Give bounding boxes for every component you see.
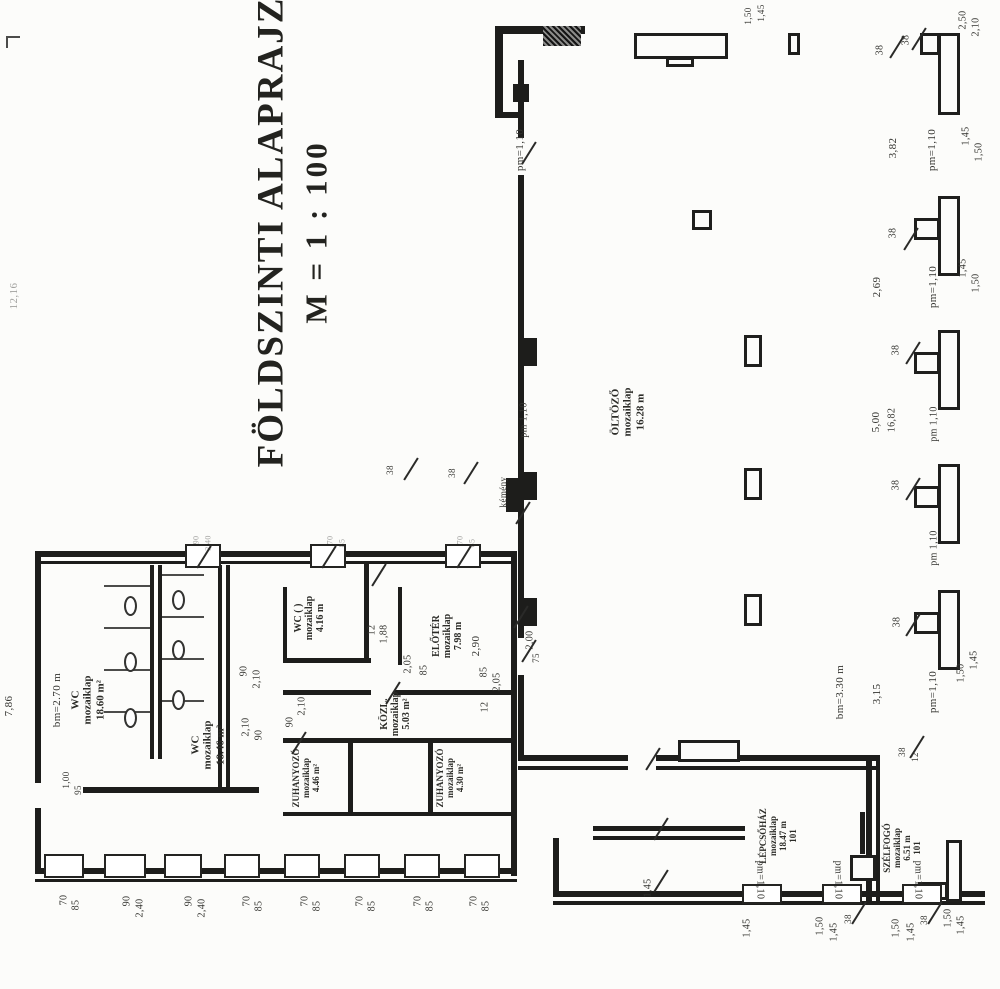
- dim-label: 2,50: [958, 10, 969, 29]
- dim-label: 7,86: [3, 696, 15, 717]
- dim-label: 1,45: [643, 878, 654, 897]
- door-slash-mark: [463, 461, 478, 484]
- wall-segment: [283, 658, 371, 663]
- wall-segment: [226, 565, 230, 789]
- drawing-title-text: FÖLDSZINTI ALAPRAJZ: [250, 0, 293, 467]
- dim-label: 38: [888, 228, 899, 239]
- dim-label: pm 1,10: [929, 406, 940, 442]
- wall-segment: [158, 565, 162, 759]
- pillar: [938, 590, 960, 670]
- door-slash-mark: [371, 563, 386, 586]
- dim-label: 12: [480, 702, 491, 713]
- dim-label: pm=1,10: [514, 129, 526, 171]
- pillar: [938, 33, 960, 115]
- dim-label: 1,50: [974, 142, 985, 161]
- dim-label: 1,45: [742, 918, 753, 937]
- dim-label: bm=2.70 m: [51, 673, 63, 727]
- dim-label: 2,10: [297, 696, 308, 715]
- dim-label: 70: [59, 895, 70, 906]
- dim-label: 38: [385, 465, 395, 475]
- wall-segment: [593, 826, 745, 831]
- wall-segment: [35, 879, 517, 882]
- pillar: [744, 335, 762, 367]
- dim-label: 2,40: [197, 898, 208, 917]
- drawing-scale-text: M = 1 : 100: [299, 0, 335, 467]
- dim-label: pm=1,10: [913, 861, 924, 900]
- wall-segment: [398, 587, 402, 665]
- dim-label: bm=3.30 m: [834, 665, 846, 719]
- wall-segment: [283, 587, 287, 663]
- dim-label: 38: [843, 914, 853, 924]
- window-symbol: [44, 854, 84, 878]
- window-slash-mark: [456, 545, 471, 568]
- dim-label: 85: [367, 901, 378, 912]
- room-label-eloter: ELŐTÉR mozaiklap 7.98 m: [431, 614, 465, 658]
- dim-label: 12: [367, 625, 378, 636]
- dim-label: 85: [481, 901, 492, 912]
- dim-label: 70: [300, 896, 311, 907]
- dim-label: 1,50: [971, 273, 982, 292]
- pillar: [744, 468, 762, 500]
- wall-segment: [495, 26, 503, 118]
- wall-segment: [553, 838, 559, 896]
- wc-fixture: [172, 640, 185, 660]
- dim-label: pm 1,10: [929, 530, 940, 566]
- dim-label: 1,88: [379, 624, 390, 643]
- dim-label: 1,50: [743, 7, 753, 24]
- dim-label: 2,90: [470, 636, 482, 657]
- dim-label: pm=1,10: [927, 266, 939, 308]
- dim-label: 90: [122, 896, 133, 907]
- wall-segment: [593, 836, 745, 840]
- pillar: [678, 740, 740, 762]
- room-label-zuhanyozo-1: ZUHANYOZÓ mozaiklap 4.46 m²: [291, 748, 321, 807]
- dim-label: 2,10: [971, 17, 982, 36]
- room-label-zuhanyozo-2: ZUHANYOZÓ mozaiklap 4.30 m²: [435, 748, 465, 807]
- dim-label: 5,00: [870, 412, 882, 433]
- pillar: [744, 594, 762, 626]
- dim-label: 38: [901, 35, 912, 46]
- room-label-kozl: KÖZL. mozaiklap 5.03 m²: [379, 692, 413, 736]
- partition-tick: [104, 585, 150, 587]
- wall-segment: [518, 675, 524, 757]
- pillar: [938, 330, 960, 410]
- wall-segment: [348, 738, 353, 814]
- room-label-oltozo: ÖLTÖZŐ mozaiklap 16.28 m: [610, 388, 647, 437]
- dim-label: 1,45: [956, 915, 967, 934]
- wall-segment: [83, 787, 259, 793]
- dim-label: 70: [355, 896, 366, 907]
- window-symbol: [284, 854, 320, 878]
- dim-label: 12,16: [8, 283, 20, 310]
- dim-label: 1,50: [943, 908, 954, 927]
- pillar: [634, 33, 728, 59]
- partition-tick: [6, 36, 8, 48]
- dim-label: 1,45: [829, 922, 840, 941]
- dim-label: 38: [875, 45, 886, 56]
- dim-label: 16,82: [887, 408, 898, 433]
- wall-segment: [518, 766, 628, 770]
- dim-label: 90: [184, 896, 195, 907]
- wall-segment: [35, 808, 41, 874]
- pillar: [914, 486, 940, 508]
- dim-label: pm 1,10: [519, 402, 530, 438]
- dim-label: 70: [456, 536, 465, 545]
- wc-fixture: [124, 652, 137, 672]
- dim-label: 70: [469, 896, 480, 907]
- dim-label: 1,45: [969, 650, 980, 669]
- window-symbol: [104, 854, 146, 878]
- pillar: [938, 464, 960, 544]
- wall-segment: [283, 738, 513, 743]
- window-symbol: [404, 854, 440, 878]
- dim-label: 85: [479, 667, 490, 678]
- dim-label: 1,45: [906, 922, 917, 941]
- wc-fixture: [124, 708, 137, 728]
- dim-label: kémény: [498, 477, 508, 508]
- dim-label: 2,10: [252, 669, 263, 688]
- dim-label: pm=1,10: [833, 861, 844, 900]
- dim-label: 90: [254, 730, 265, 741]
- window-symbol: [464, 854, 500, 878]
- dim-label: 2,05: [403, 654, 414, 673]
- wall-segment: [150, 565, 154, 759]
- room-label-wc-3: WC ( ) mozaiklap 4.16 m: [293, 596, 327, 640]
- dim-label: 38: [919, 915, 929, 925]
- dim-label: 38: [891, 480, 902, 491]
- dim-label: 85: [425, 901, 436, 912]
- pillar: [788, 33, 800, 55]
- dim-label: 95: [73, 785, 83, 795]
- dim-label: 1,50: [891, 918, 902, 937]
- door-slash-mark: [403, 457, 418, 480]
- partition-tick: [162, 574, 204, 576]
- wc-fixture: [172, 590, 185, 610]
- dim-label: 3,15: [871, 684, 883, 705]
- pillar: [666, 57, 694, 67]
- dim-label: 2,69: [871, 277, 883, 298]
- dim-label: 70: [242, 896, 253, 907]
- chimney-hatch-block: [543, 26, 581, 46]
- dim-label: pm=1,10: [927, 671, 939, 713]
- wall-segment: [428, 738, 433, 814]
- dim-label: 85: [254, 901, 265, 912]
- wall-segment: [876, 755, 880, 905]
- wc-fixture: [172, 690, 185, 710]
- dim-label: 70: [326, 536, 335, 545]
- pillar: [692, 210, 712, 230]
- dim-label: 85: [71, 900, 82, 911]
- dim-label: 2,40: [204, 535, 213, 551]
- room-label-wc-1: WC mozaiklap 18.60 m²: [70, 676, 107, 725]
- floorplan-sheet: FÖLDSZINTI ALAPRAJZ M = 1 : 100 WC mozai…: [0, 0, 1000, 989]
- wall-segment: [511, 551, 517, 876]
- wall-segment: [35, 551, 41, 783]
- dim-label: 38: [892, 617, 903, 628]
- wall-segment: [364, 563, 369, 663]
- dim-label: 1,45: [756, 4, 766, 21]
- dim-label: 1,45: [961, 126, 972, 145]
- wall-segment: [524, 338, 537, 366]
- partition-tick: [104, 627, 150, 629]
- dim-label: 3,82: [887, 138, 899, 159]
- window-symbol: [344, 854, 380, 878]
- dim-label: 2,05: [492, 672, 503, 691]
- dim-label: 12: [910, 752, 920, 762]
- dim-label: 38: [897, 747, 907, 757]
- room-label-wc-2: WC mozaiklap 18.46 m²: [190, 721, 227, 770]
- wall-segment: [656, 766, 880, 770]
- dim-label: 85: [419, 665, 430, 676]
- dim-label: 1,50: [956, 663, 967, 682]
- dim-label: pm=1,10: [755, 861, 766, 900]
- dim-label: 38: [447, 468, 457, 478]
- dim-label: 70: [413, 896, 424, 907]
- window-symbol: [445, 544, 481, 568]
- partition-tick: [6, 36, 20, 38]
- wall-segment: [283, 690, 371, 695]
- partition-tick: [162, 658, 204, 660]
- dim-label: 38: [891, 345, 902, 356]
- dim-label: 2,00: [525, 630, 536, 649]
- partition-tick: [162, 616, 204, 618]
- pillar: [920, 33, 940, 55]
- wall-segment: [524, 472, 537, 500]
- dim-label: 85: [468, 539, 477, 548]
- wall-segment: [518, 755, 628, 761]
- dim-label: 1,50: [815, 916, 826, 935]
- dim-label: 90: [239, 666, 250, 677]
- dim-label: pm=1,10: [926, 129, 938, 171]
- wall-segment: [860, 812, 865, 854]
- wall-segment: [524, 598, 537, 626]
- window-symbol: [164, 854, 202, 878]
- wall-segment: [513, 84, 529, 102]
- dim-label: 2,10: [241, 717, 252, 736]
- door-slash-mark: [653, 869, 668, 892]
- pillar: [946, 840, 962, 902]
- wall-segment: [866, 755, 872, 905]
- room-label-lepcsohaz: LÉPCSŐHÁZ mozaiklap 18.47 m 101: [758, 808, 798, 864]
- wall-segment: [495, 112, 519, 118]
- dim-label: 75: [531, 653, 541, 663]
- dim-label: 1,00: [61, 771, 71, 788]
- dim-label: 85: [338, 539, 347, 548]
- pillar: [850, 855, 876, 881]
- dim-label: 2,40: [135, 898, 146, 917]
- dim-label: 1,45: [958, 258, 969, 277]
- wall-segment: [283, 812, 513, 816]
- dim-label: 90: [192, 536, 201, 545]
- dim-label: 85: [312, 901, 323, 912]
- dim-label: 90: [285, 717, 296, 728]
- window-symbol: [224, 854, 260, 878]
- window-slash-mark: [321, 545, 336, 568]
- window-symbol: [310, 544, 346, 568]
- drawing-title: FÖLDSZINTI ALAPRAJZ M = 1 : 100: [250, 0, 335, 467]
- pillar: [914, 352, 940, 374]
- wc-fixture: [124, 596, 137, 616]
